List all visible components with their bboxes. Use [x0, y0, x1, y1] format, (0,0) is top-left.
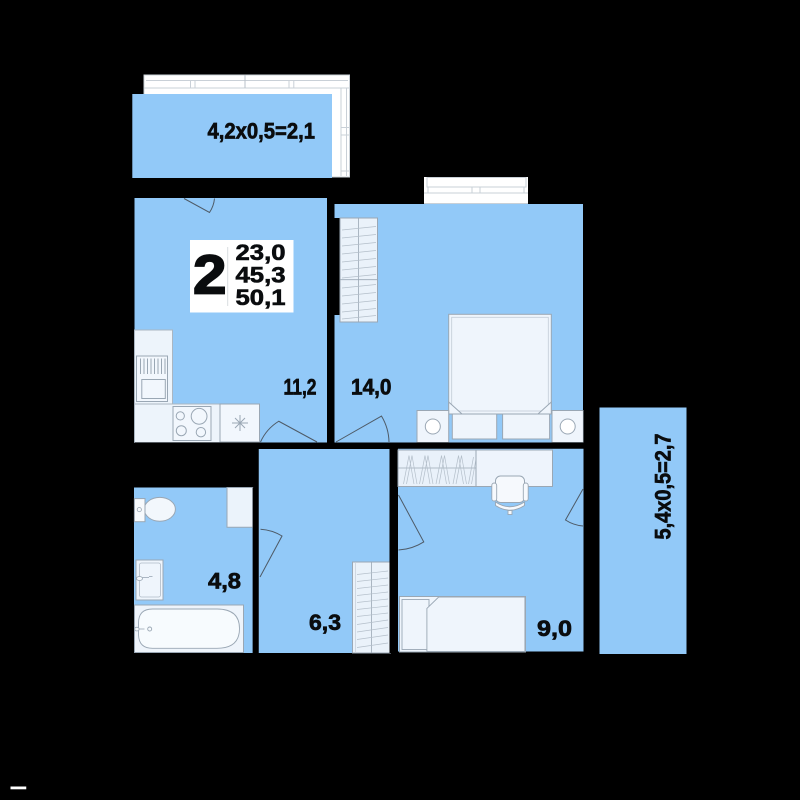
svg-text:5,4x0,5=2,7: 5,4x0,5=2,7 [651, 434, 676, 540]
svg-text:4,2x0,5=2,1: 4,2x0,5=2,1 [208, 119, 316, 144]
svg-text:50,1: 50,1 [236, 285, 286, 310]
svg-text:6,3: 6,3 [309, 610, 341, 635]
svg-text:23,0: 23,0 [236, 240, 286, 265]
svg-text:4,8: 4,8 [208, 569, 241, 594]
svg-text:9,0: 9,0 [537, 616, 572, 641]
svg-text:45,3: 45,3 [236, 263, 286, 288]
svg-text:11,2: 11,2 [284, 375, 317, 400]
svg-text:2: 2 [193, 244, 227, 306]
svg-text:14,0: 14,0 [351, 375, 392, 400]
